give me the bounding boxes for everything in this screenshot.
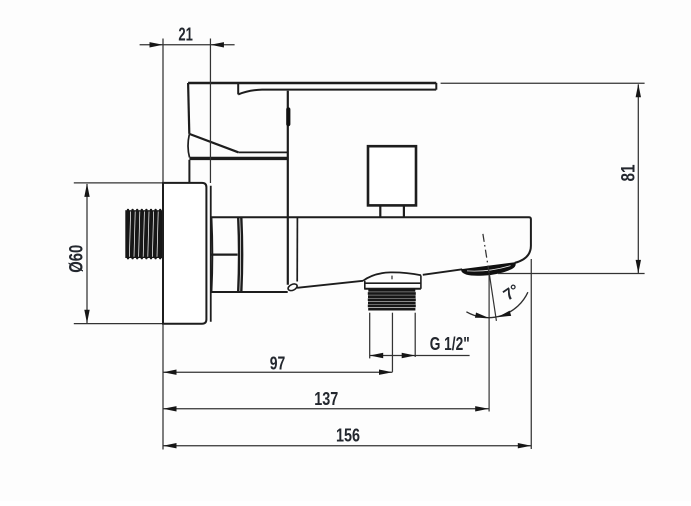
svg-text:137: 137 (314, 389, 338, 409)
svg-text:G 1/2": G 1/2" (430, 334, 470, 354)
svg-text:21: 21 (178, 25, 193, 45)
svg-text:156: 156 (336, 425, 360, 445)
svg-text:7°: 7° (501, 282, 523, 305)
svg-text:Ø60: Ø60 (67, 245, 88, 273)
svg-text:81: 81 (618, 164, 639, 181)
svg-text:97: 97 (270, 354, 286, 374)
